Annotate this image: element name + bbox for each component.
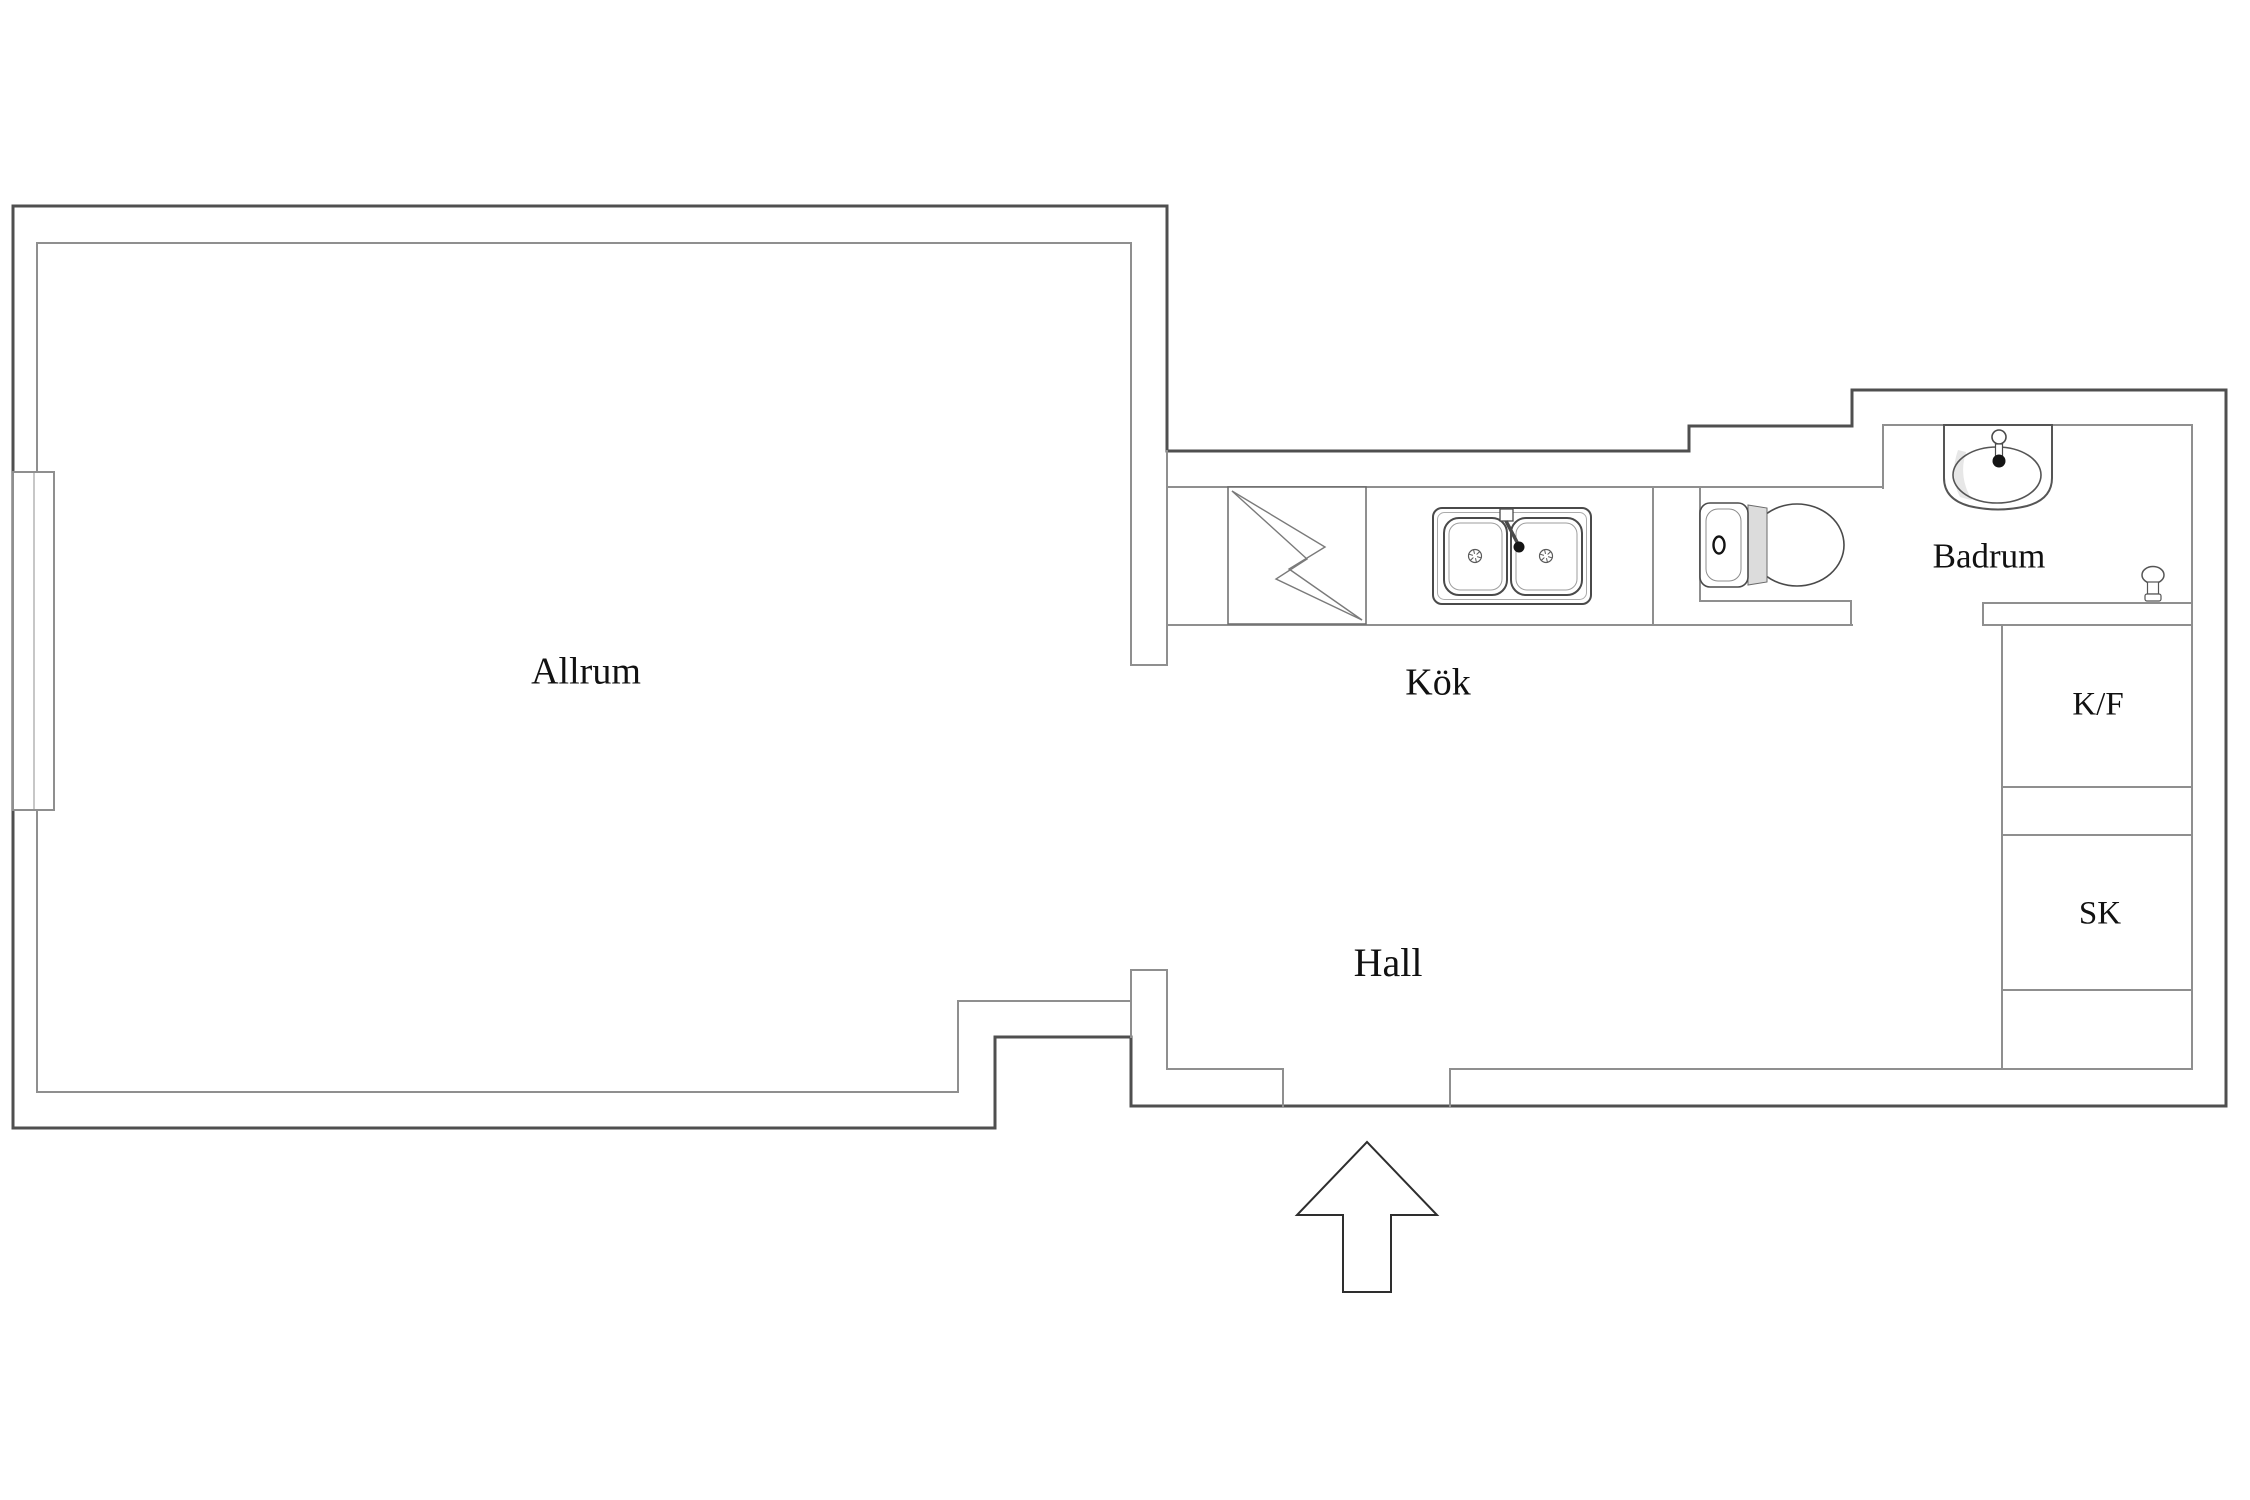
- sink-drain-icon: [1540, 550, 1553, 563]
- sink-faucet-base: [1500, 509, 1513, 521]
- room-label-kok: Kök: [1405, 661, 1470, 703]
- room-label-kf: K/F: [2072, 687, 2123, 723]
- basin-faucet-stem: [1996, 444, 2003, 456]
- toilet: [1700, 503, 1844, 587]
- room-label-badrum: Badrum: [1933, 536, 2046, 575]
- floor-plan-canvas: AllrumKökHallBadrumK/FSK: [0, 0, 2250, 1500]
- shower-mixer-head-icon: [2142, 567, 2164, 584]
- shower-mixer-neck: [2148, 582, 2159, 594]
- basin-faucet-handle: [1992, 430, 2006, 444]
- shower-mixer-foot: [2145, 594, 2161, 601]
- room-label-sk: SK: [2079, 896, 2121, 932]
- kitchen-sink: [1433, 508, 1591, 604]
- stove: [1228, 487, 1366, 624]
- room-label-allrum: Allrum: [531, 650, 641, 692]
- stove-square: [1228, 487, 1366, 624]
- toilet-seat-hinge: [1748, 505, 1767, 585]
- basin-faucet-spout: [1993, 455, 2006, 468]
- sink-faucet-knob: [1514, 542, 1525, 553]
- plan-background: [0, 0, 2250, 1500]
- bathroom-basin: [1944, 425, 2052, 510]
- toilet-flush-button: [1714, 537, 1725, 554]
- floor-plan: AllrumKökHallBadrumK/FSK: [0, 0, 2250, 1500]
- room-label-hall: Hall: [1354, 940, 1423, 985]
- sink-drain-icon: [1469, 550, 1482, 563]
